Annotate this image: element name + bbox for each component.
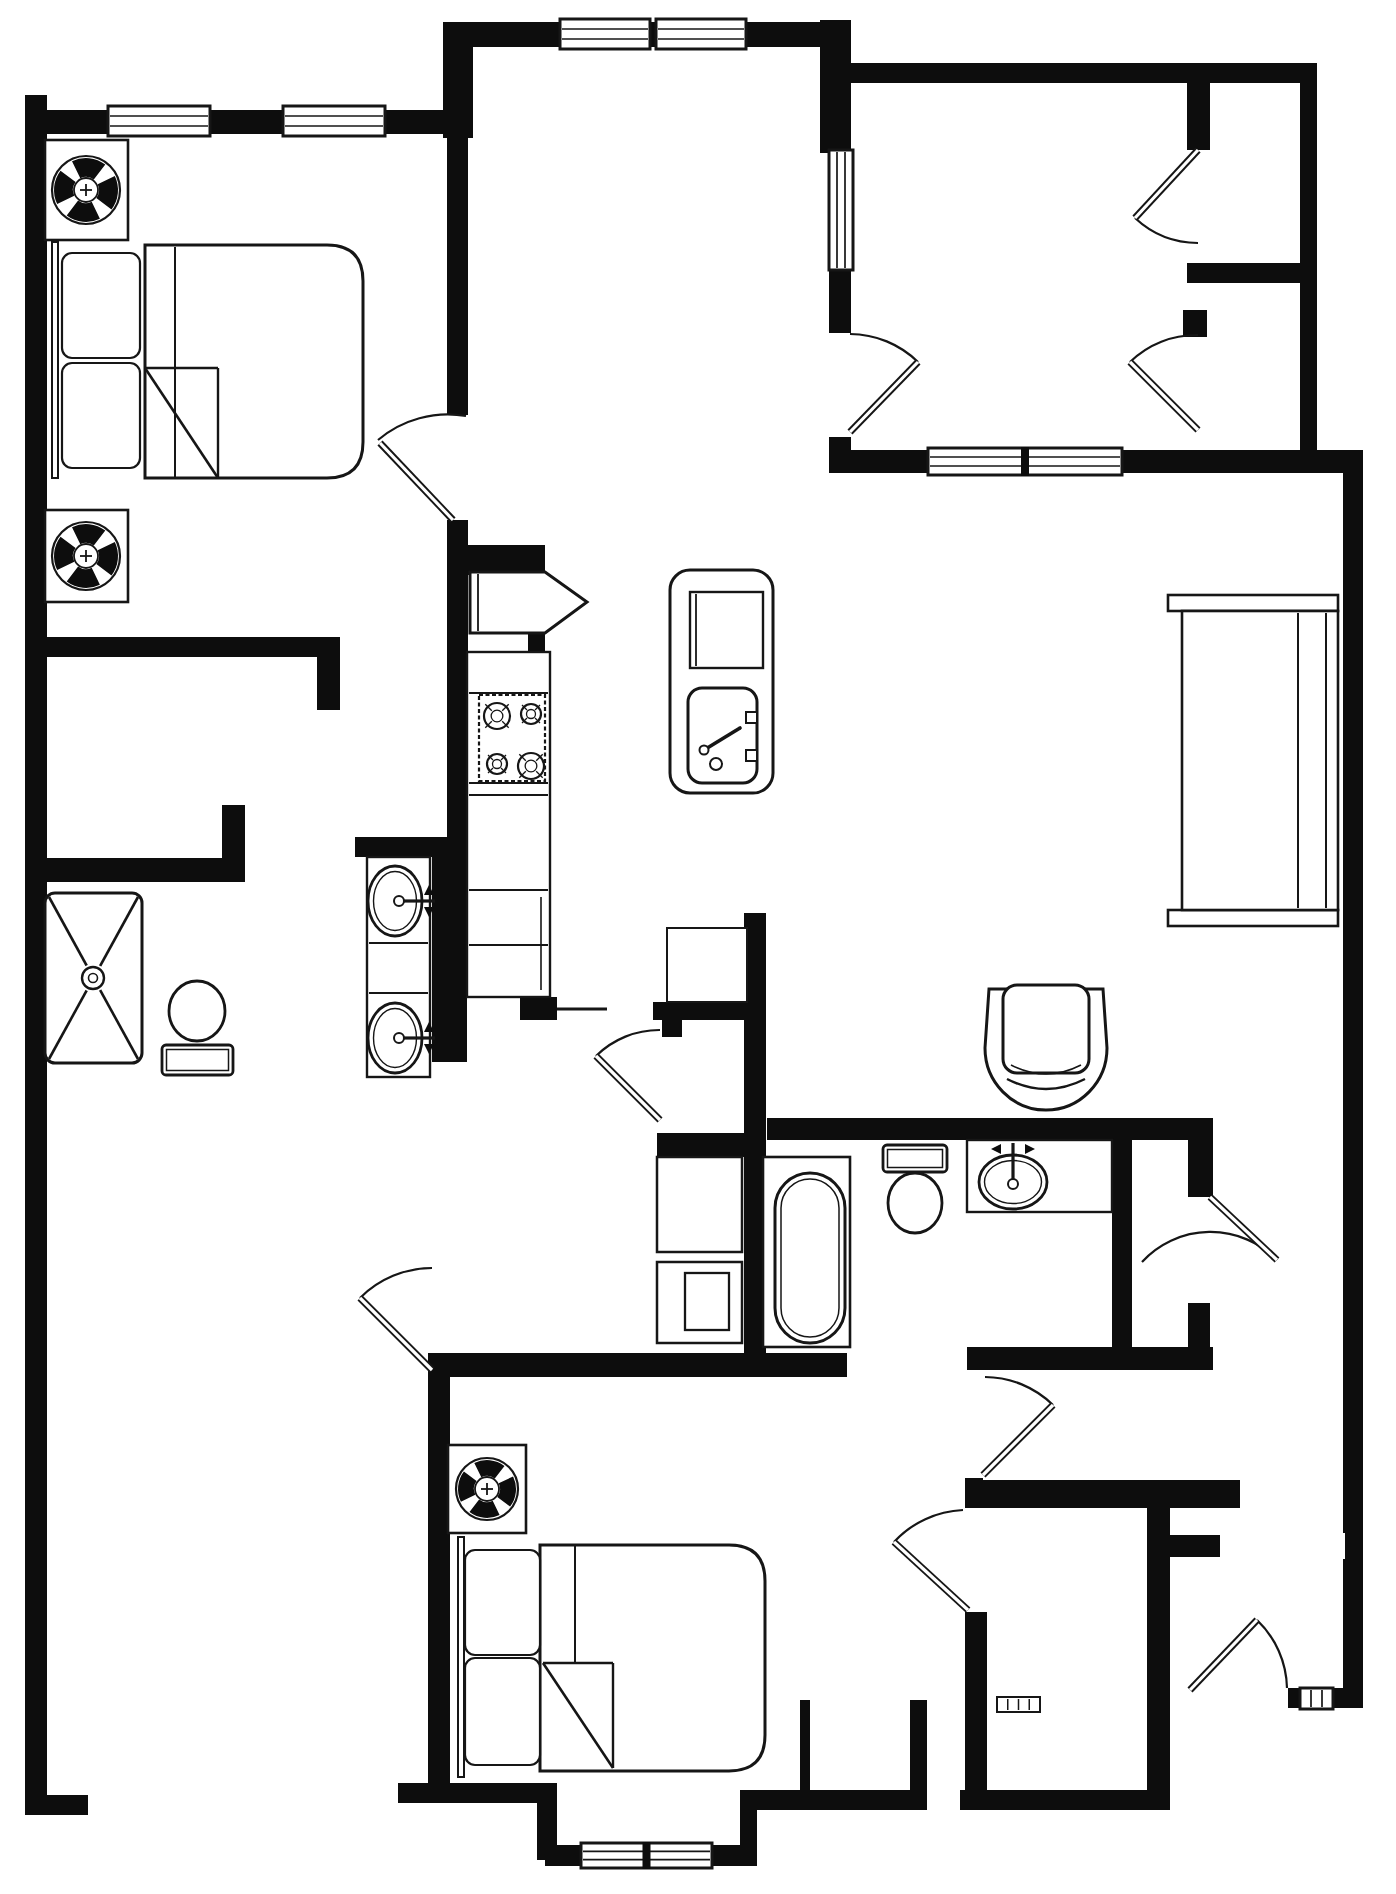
wall-segment [1300,63,1317,473]
ceiling-fan [448,1445,526,1533]
wall-segment [43,637,340,657]
wall-segment [1118,450,1347,473]
armchair-seat [1003,985,1089,1073]
wall-segment [653,1002,747,1020]
wall-segment [960,1790,1170,1810]
wall-segment [837,63,1317,83]
bed-2 [458,1537,765,1777]
faucet-knob [746,750,757,761]
bed-mattress [145,245,363,478]
faucet-knob [746,712,757,723]
wall-segment [1187,83,1210,150]
wall-notch [1333,1533,1345,1559]
window-mullion [643,1842,651,1869]
bed-pillow [62,363,140,468]
stove-burner [518,753,544,779]
window-mullion [1021,447,1029,476]
window [560,19,650,49]
stove-burner [484,703,510,729]
washer [657,1157,742,1252]
window [108,106,210,136]
shelving-cap [1168,910,1338,926]
wall-segment [820,20,851,153]
wall-segment [967,1347,1213,1370]
vent [997,1697,1040,1712]
wall-segment [428,1353,450,1790]
toilet-bowl [888,1173,942,1233]
wall-segment [837,450,932,473]
floor-plan-canvas [0,0,1396,1894]
window [656,19,746,49]
bed-headboard [458,1537,464,1777]
vanity [967,1140,1112,1212]
wall-segment [1187,263,1300,283]
island-sink [688,688,757,783]
bed-pillow [465,1658,540,1765]
wall-segment [753,1790,927,1810]
wall-segment [965,1480,1240,1508]
wall-segment [27,860,245,882]
shelving-cap [1168,595,1338,611]
toilet-bowl [169,981,225,1041]
bed-pillow [62,253,140,358]
toilet [883,1145,947,1233]
wall-segment [447,132,468,415]
wall-segment [1183,310,1207,337]
wall-segment [657,1133,747,1157]
bathtub [775,1173,845,1343]
window [283,106,385,136]
wall-segment [829,267,851,333]
faucet-base [1008,1179,1018,1189]
stove-burner [487,754,507,774]
wall-segment [25,1795,88,1815]
bed-mattress [540,1545,765,1771]
wall-segment [428,1353,847,1377]
wall-segment [1170,1535,1220,1557]
window [1300,1688,1333,1709]
ceiling-fan [45,140,128,240]
wall-segment [662,1020,682,1037]
wall-segment [1147,1507,1170,1810]
wall-segment [432,837,467,1062]
floor-plan-sheet [0,0,1396,1894]
wall-segment [1188,1140,1213,1197]
window [829,150,853,270]
bed-pillow [465,1550,540,1655]
vanity [367,857,435,1077]
wall-segment [317,657,340,710]
wall-segment [800,1700,810,1790]
wall-segment [965,1612,987,1790]
stove-burner [521,704,541,724]
shelving-unit [1182,611,1338,910]
faucet-base [394,1033,404,1043]
linen-closet [667,928,747,1002]
wall-segment [1112,1140,1132,1358]
wall-segment [520,997,557,1020]
bed-headboard [52,242,58,478]
faucet-base [394,896,404,906]
faucet-base [700,746,709,755]
ceiling-fan [45,510,128,602]
wall-segment [767,1118,1213,1140]
wall-segment [910,1700,927,1790]
wall-segment [528,633,545,653]
wall-segment [398,1783,557,1803]
wall-segment [1343,450,1363,1708]
island-cabinet [690,592,763,668]
